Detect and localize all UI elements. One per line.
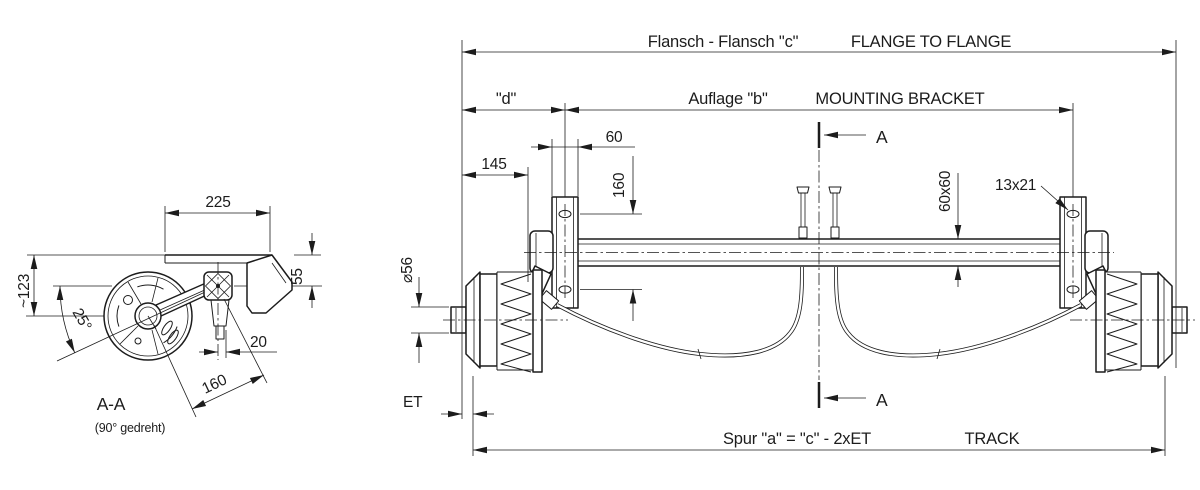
section-view-note: (90° gedreht) [95,421,166,435]
hub-bore-section [135,303,161,329]
dim-text-160-holes: 160 [611,172,628,198]
tube-pivot-left [530,231,553,273]
canvas-background [0,0,1200,490]
dim-text-145: 145 [481,156,506,173]
dim-text-13x21: 13x21 [995,177,1036,194]
label-flange-to-flange: FLANGE TO FLANGE [851,33,1012,51]
label-track: TRACK [965,430,1020,448]
dim-text-60: 60 [606,129,623,146]
dim-text-55: 55 [289,268,306,285]
tube-pivot-right [1085,231,1108,273]
section-mark-top: A [876,127,888,147]
section-view-title: A-A [97,394,126,414]
dim-text-20: 20 [250,334,267,351]
label-spur-formula: Spur "a" = "c" - 2xET [723,430,871,448]
label-et: ET [403,394,423,411]
axle-technical-drawing: A A Flansch - Flansch "c" FLANGE TO FLAN… [0,0,1200,490]
label-auflage-b: Auflage "b" [688,90,768,108]
label-d-ref: "d" [496,90,517,108]
dim-text-phi56: ⌀56 [399,257,416,283]
drawing-canvas: A A Flansch - Flansch "c" FLANGE TO FLAN… [0,0,1200,490]
dim-text-60x60: 60x60 [937,170,954,212]
label-mounting-bracket: MOUNTING BRACKET [815,90,984,108]
dim-text-225: 225 [205,194,230,211]
section-mark-bottom: A [876,390,888,410]
dim-text-123: ~123 [16,274,33,308]
label-flansch-flansch: Flansch - Flansch "c" [648,33,799,51]
